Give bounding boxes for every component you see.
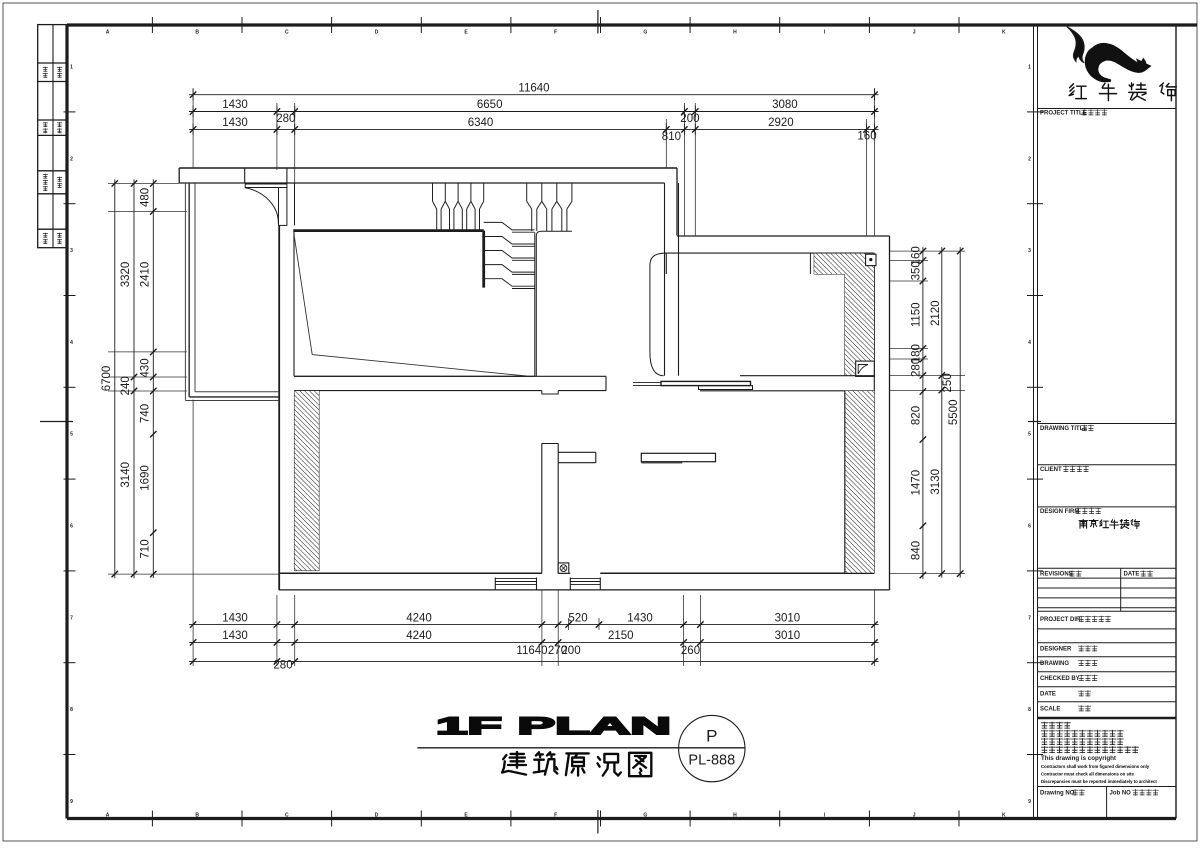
svg-text:1430: 1430	[222, 630, 248, 642]
svg-text:9: 9	[70, 799, 73, 805]
svg-text:430: 430	[139, 358, 151, 377]
svg-text:F: F	[554, 30, 557, 36]
svg-text:PROJECT TITLE: PROJECT TITLE	[1040, 111, 1087, 117]
svg-text:K: K	[1002, 30, 1006, 36]
svg-text:260: 260	[681, 645, 700, 657]
svg-text:7: 7	[1028, 615, 1031, 621]
svg-text:520: 520	[568, 612, 587, 624]
svg-text:DESIGN FIRM: DESIGN FIRM	[1040, 509, 1079, 515]
svg-text:4240: 4240	[406, 612, 432, 624]
svg-text:4: 4	[70, 340, 73, 346]
svg-text:160: 160	[857, 130, 876, 142]
svg-text:Discrepancies must be reported: Discrepancies must be reported immediate…	[1041, 779, 1157, 784]
svg-text:A: A	[106, 813, 110, 819]
svg-text:REVISIONS: REVISIONS	[1040, 572, 1073, 578]
svg-text:840: 840	[911, 541, 923, 560]
svg-text:6700: 6700	[101, 366, 113, 392]
svg-text:A: A	[106, 30, 110, 36]
svg-text:B: B	[195, 30, 199, 36]
svg-text:DATE: DATE	[1040, 692, 1056, 698]
svg-text:B: B	[195, 813, 199, 819]
svg-text:3010: 3010	[775, 612, 801, 624]
svg-text:2: 2	[1028, 156, 1031, 162]
svg-text:C: C	[285, 813, 289, 819]
svg-text:1470: 1470	[911, 470, 923, 496]
svg-text:250: 250	[942, 373, 954, 392]
svg-text:810: 810	[662, 131, 681, 143]
svg-text:1690: 1690	[139, 465, 151, 491]
svg-text:480: 480	[139, 188, 151, 207]
svg-text:5: 5	[70, 432, 73, 438]
svg-text:3080: 3080	[772, 99, 798, 111]
svg-text:2410: 2410	[139, 262, 151, 288]
svg-text:F: F	[554, 813, 557, 819]
svg-text:3: 3	[1028, 248, 1031, 254]
svg-text:3: 3	[70, 248, 73, 254]
svg-text:J: J	[913, 813, 916, 819]
svg-text:350: 350	[911, 261, 923, 280]
svg-text:3320: 3320	[120, 262, 132, 288]
svg-text:H: H	[733, 813, 737, 819]
svg-text:3130: 3130	[930, 469, 942, 495]
svg-text:SCALE: SCALE	[1040, 707, 1060, 713]
svg-text:7: 7	[70, 615, 73, 621]
svg-text:1150: 1150	[911, 302, 923, 327]
svg-text:C: C	[285, 30, 289, 36]
svg-text:710: 710	[139, 539, 151, 558]
svg-text:8: 8	[1028, 707, 1031, 713]
svg-text:240: 240	[120, 376, 132, 395]
svg-text:E: E	[464, 30, 468, 36]
svg-text:DESIGNER: DESIGNER	[1040, 647, 1072, 653]
svg-text:8: 8	[70, 707, 73, 713]
svg-text:2150: 2150	[608, 630, 634, 642]
svg-text:Contractor must check all dime: Contractor must check all dimensions on …	[1041, 772, 1134, 777]
svg-text:280: 280	[273, 660, 292, 672]
svg-text:PROJECT DIR: PROJECT DIR	[1040, 617, 1081, 623]
svg-text:6650: 6650	[477, 99, 503, 111]
svg-text:Drawing NO: Drawing NO	[1040, 791, 1075, 797]
svg-text:200: 200	[680, 113, 699, 125]
svg-text:6340: 6340	[468, 117, 494, 129]
svg-text:200: 200	[561, 645, 580, 657]
svg-text:P: P	[706, 727, 717, 746]
svg-text:G: G	[643, 813, 647, 819]
svg-text:DATE: DATE	[1124, 572, 1140, 578]
svg-text:5500: 5500	[948, 400, 960, 426]
svg-text:CLIENT: CLIENT	[1040, 467, 1062, 473]
svg-text:5: 5	[1028, 432, 1031, 438]
svg-text:11640: 11640	[518, 82, 549, 94]
svg-text:CHECKED BY: CHECKED BY	[1040, 676, 1080, 682]
svg-text:K: K	[1002, 813, 1006, 819]
svg-text:PL-888: PL-888	[688, 753, 735, 769]
svg-text:2120: 2120	[930, 300, 942, 326]
svg-text:DRAWING TITLE: DRAWING TITLE	[1040, 426, 1087, 432]
svg-text:1: 1	[70, 65, 73, 71]
svg-text:This drawing is copyright: This drawing is copyright	[1041, 755, 1116, 762]
svg-text:6: 6	[1028, 524, 1031, 530]
svg-text:D: D	[375, 30, 379, 36]
svg-text:1430: 1430	[222, 612, 248, 624]
svg-text:280: 280	[276, 113, 295, 125]
svg-text:6: 6	[70, 524, 73, 530]
svg-text:2920: 2920	[768, 117, 794, 129]
svg-text:1430: 1430	[222, 99, 248, 111]
svg-text:3140: 3140	[120, 462, 132, 488]
svg-text:J: J	[913, 30, 916, 36]
svg-text:H: H	[733, 30, 737, 36]
svg-text:I: I	[824, 30, 826, 36]
svg-text:280: 280	[911, 358, 923, 377]
svg-text:Contractors shall work from fi: Contractors shall work from figured dime…	[1041, 764, 1150, 769]
svg-text:1: 1	[1028, 65, 1031, 71]
svg-text:740: 740	[139, 404, 151, 423]
svg-text:11640: 11640	[516, 645, 547, 657]
svg-text:4: 4	[1028, 340, 1031, 346]
svg-text:1430: 1430	[627, 612, 653, 624]
svg-text:1F PLAN: 1F PLAN	[436, 713, 671, 740]
svg-text:820: 820	[911, 406, 923, 425]
svg-text:2: 2	[70, 156, 73, 162]
svg-text:9: 9	[1028, 799, 1031, 805]
svg-text:Job NO: Job NO	[1110, 791, 1132, 797]
svg-text:4240: 4240	[406, 630, 432, 642]
svg-text:DRAWING: DRAWING	[1040, 661, 1069, 667]
svg-text:1430: 1430	[222, 117, 248, 129]
svg-text:D: D	[375, 813, 379, 819]
svg-text:3010: 3010	[775, 630, 801, 642]
svg-text:G: G	[643, 30, 647, 36]
